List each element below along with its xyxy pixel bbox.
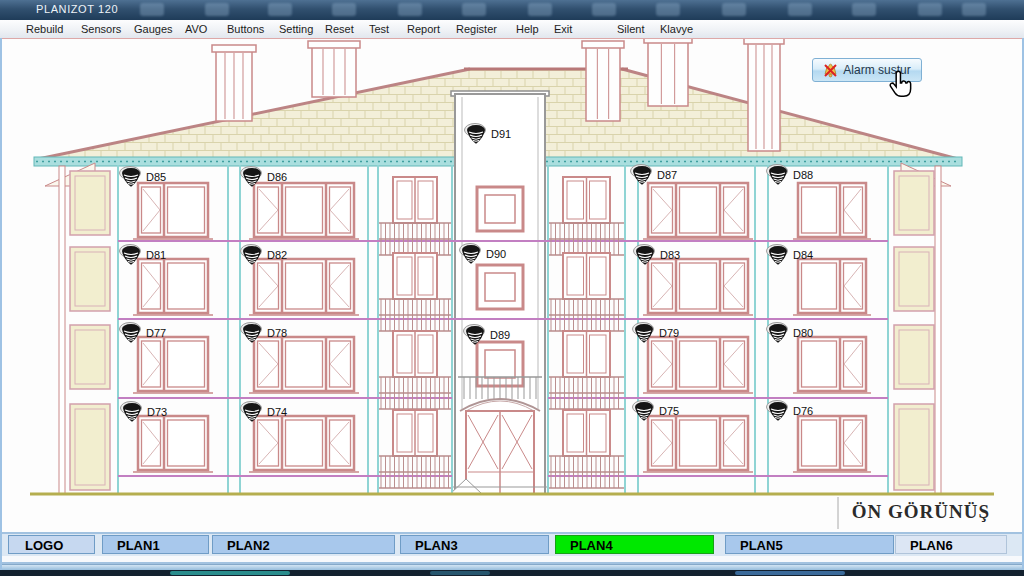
sensor-label: D83 bbox=[660, 249, 680, 261]
sensor-label: D86 bbox=[267, 171, 287, 183]
smoke-detector-icon bbox=[240, 322, 264, 344]
sensor-d83[interactable]: D83 bbox=[633, 244, 680, 266]
sensor-d86[interactable]: D86 bbox=[240, 166, 287, 188]
menu-item-exit[interactable]: Exit bbox=[550, 20, 576, 38]
drawing-caption: ÖN GÖRÜNÜŞ bbox=[842, 501, 990, 523]
smoke-detector-icon bbox=[766, 322, 790, 344]
menu-item-sensors[interactable]: Sensors bbox=[77, 20, 125, 38]
sensor-d78[interactable]: D78 bbox=[240, 322, 287, 344]
smoke-detector-icon bbox=[766, 244, 790, 266]
smoke-detector-icon bbox=[120, 401, 144, 423]
sensor-d85[interactable]: D85 bbox=[119, 166, 166, 188]
titlebar-blob bbox=[332, 3, 356, 16]
sensor-label: D82 bbox=[267, 249, 287, 261]
smoke-detector-icon bbox=[630, 164, 654, 186]
smoke-detector-icon bbox=[464, 123, 488, 145]
menu-item-rebuild[interactable]: Rebuild bbox=[22, 20, 67, 38]
titlebar-blob bbox=[268, 3, 292, 16]
titlebar-blob bbox=[462, 3, 486, 16]
smoke-detector-icon bbox=[632, 322, 656, 344]
taskbar-item bbox=[735, 571, 845, 575]
menubar: RebuildSensorsGaugesAVOButtonsSettingRes… bbox=[0, 20, 1024, 39]
sensor-label: D73 bbox=[147, 406, 167, 418]
menu-item-report[interactable]: Report bbox=[403, 20, 444, 38]
sensor-d77[interactable]: D77 bbox=[119, 322, 166, 344]
plan-tabbar: LOGOPLAN1PLAN2PLAN3PLAN4PLAN5PLAN6 bbox=[0, 532, 1024, 564]
sensor-label: D90 bbox=[486, 248, 506, 260]
sensor-d89[interactable]: D89 bbox=[463, 324, 510, 346]
smoke-detector-icon bbox=[463, 324, 487, 346]
sensor-label: D84 bbox=[793, 249, 813, 261]
smoke-detector-icon bbox=[632, 400, 656, 422]
titlebar-blob bbox=[788, 3, 812, 16]
sensor-label: D79 bbox=[659, 327, 679, 339]
titlebar-blob bbox=[205, 3, 229, 16]
sensor-label: D88 bbox=[793, 169, 813, 181]
titlebar-blob bbox=[918, 3, 942, 16]
tab-plan1[interactable]: PLAN1 bbox=[102, 535, 209, 554]
sensor-d74[interactable]: D74 bbox=[240, 401, 287, 423]
titlebar-blob bbox=[592, 3, 616, 16]
sensor-d88[interactable]: D88 bbox=[766, 164, 813, 186]
menu-item-reset[interactable]: Reset bbox=[321, 20, 358, 38]
sensor-d84[interactable]: D84 bbox=[766, 244, 813, 266]
menu-item-help[interactable]: Help bbox=[512, 20, 543, 38]
tab-plan4[interactable]: PLAN4 bbox=[555, 535, 714, 554]
smoke-detector-icon bbox=[633, 244, 657, 266]
menu-item-setting[interactable]: Setting bbox=[275, 20, 317, 38]
titlebar-blob bbox=[962, 3, 986, 16]
titlebar[interactable]: PLANIZOT 120 bbox=[0, 0, 1024, 20]
sensor-label: D78 bbox=[267, 327, 287, 339]
smoke-detector-icon bbox=[119, 322, 143, 344]
smoke-detector-icon bbox=[119, 244, 143, 266]
sensor-label: D81 bbox=[146, 249, 166, 261]
sensor-d87[interactable]: D87 bbox=[630, 164, 677, 186]
tab-logo[interactable]: LOGO bbox=[8, 535, 95, 554]
menu-item-register[interactable]: Register bbox=[452, 20, 501, 38]
sensor-label: D77 bbox=[146, 327, 166, 339]
tab-plan6[interactable]: PLAN6 bbox=[895, 535, 1007, 554]
sensor-d82[interactable]: D82 bbox=[240, 244, 287, 266]
taskbar-item bbox=[430, 571, 490, 575]
sensor-label: D76 bbox=[793, 405, 813, 417]
titlebar-blob bbox=[656, 3, 680, 16]
titlebar-blob bbox=[852, 3, 876, 16]
tab-plan5[interactable]: PLAN5 bbox=[725, 535, 894, 554]
drawing-area: D85D86D91D87D88D81D82D90D83D84D77D78D89D… bbox=[0, 38, 1024, 533]
sensor-d90[interactable]: D90 bbox=[459, 243, 506, 265]
taskbar-item bbox=[170, 571, 290, 575]
sensor-d81[interactable]: D81 bbox=[119, 244, 166, 266]
cursor-pointer-icon bbox=[888, 69, 914, 99]
smoke-detector-icon bbox=[766, 164, 790, 186]
menu-item-gauges[interactable]: Gauges bbox=[130, 20, 177, 38]
planizot-window: PLANIZOT 120 RebuildSensorsGaugesAVOButt… bbox=[0, 0, 1024, 576]
window-title: PLANIZOT 120 bbox=[36, 3, 118, 15]
sensor-label: D91 bbox=[491, 128, 511, 140]
titlebar-blob bbox=[140, 3, 164, 16]
smoke-detector-icon bbox=[459, 243, 483, 265]
menu-item-avo[interactable]: AVO bbox=[181, 20, 211, 38]
sensor-label: D85 bbox=[146, 171, 166, 183]
tab-plan3[interactable]: PLAN3 bbox=[400, 535, 549, 554]
menu-item-silent[interactable]: Silent bbox=[613, 20, 649, 38]
sensor-d76[interactable]: D76 bbox=[766, 400, 813, 422]
smoke-detector-icon bbox=[240, 401, 264, 423]
titlebar-blob bbox=[398, 3, 422, 16]
sensor-label: D87 bbox=[657, 169, 677, 181]
menu-item-klavye[interactable]: Klavye bbox=[656, 20, 697, 38]
titlebar-blob bbox=[722, 3, 746, 16]
sensor-label: D75 bbox=[659, 405, 679, 417]
sensor-d80[interactable]: D80 bbox=[766, 322, 813, 344]
sensor-d91[interactable]: D91 bbox=[464, 123, 511, 145]
smoke-detector-icon bbox=[240, 166, 264, 188]
bell-muted-icon bbox=[823, 63, 838, 78]
smoke-detector-icon bbox=[119, 166, 143, 188]
sensor-d79[interactable]: D79 bbox=[632, 322, 679, 344]
titlebar-blob bbox=[528, 3, 552, 16]
menu-item-buttons[interactable]: Buttons bbox=[223, 20, 268, 38]
sensor-d73[interactable]: D73 bbox=[120, 401, 167, 423]
desktop-strip bbox=[0, 570, 1024, 576]
smoke-detector-icon bbox=[766, 400, 790, 422]
building-drawing bbox=[0, 39, 1024, 533]
sensor-label: D80 bbox=[793, 327, 813, 339]
sensor-d75[interactable]: D75 bbox=[632, 400, 679, 422]
sensor-label: D89 bbox=[490, 329, 510, 341]
window-left-border bbox=[0, 38, 2, 570]
menu-item-test[interactable]: Test bbox=[365, 20, 393, 38]
smoke-detector-icon bbox=[240, 244, 264, 266]
sensor-label: D74 bbox=[267, 406, 287, 418]
tab-plan2[interactable]: PLAN2 bbox=[212, 535, 395, 554]
